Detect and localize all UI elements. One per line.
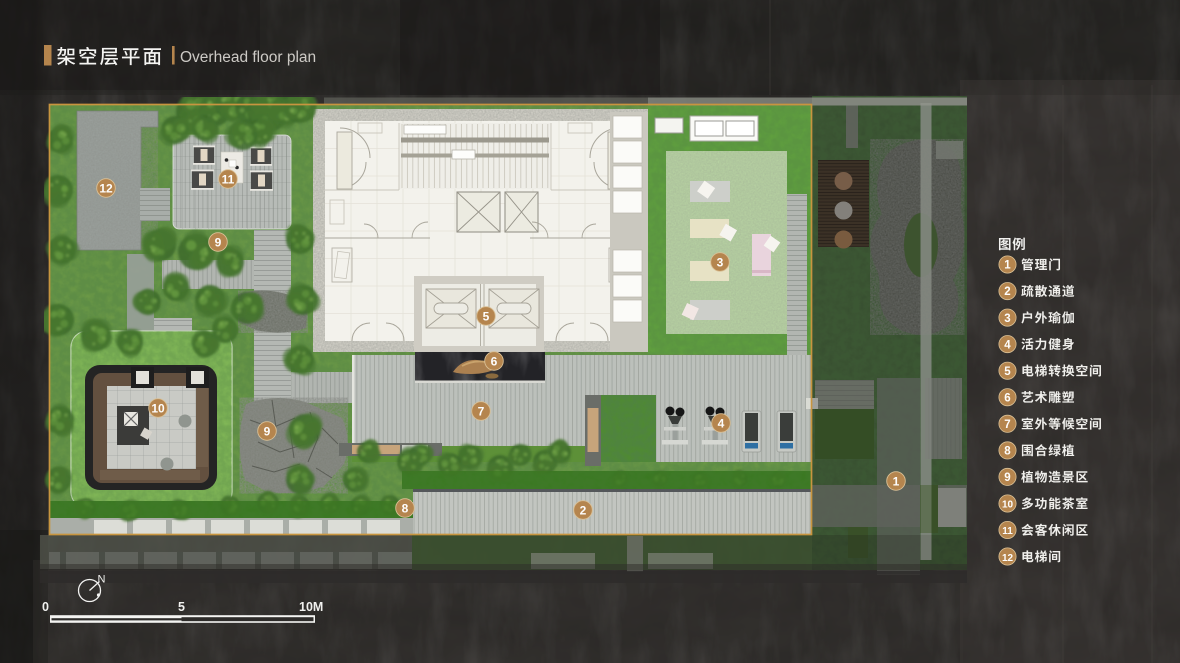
svg-text:N: N	[98, 574, 106, 586]
svg-text:4: 4	[1004, 339, 1011, 351]
svg-text:10: 10	[1002, 500, 1014, 511]
svg-text:5: 5	[483, 309, 490, 323]
svg-text:8: 8	[1004, 446, 1011, 458]
svg-text:12: 12	[1002, 553, 1014, 564]
svg-text:1: 1	[1004, 260, 1011, 272]
svg-text:Overhead floor plan: Overhead floor plan	[180, 49, 316, 66]
svg-text:5: 5	[178, 600, 185, 614]
svg-text:4: 4	[718, 416, 725, 430]
svg-text:3: 3	[1004, 313, 1010, 325]
svg-text:5: 5	[1004, 366, 1011, 378]
svg-text:11: 11	[1002, 526, 1013, 537]
svg-text:9: 9	[264, 424, 271, 438]
svg-text:9: 9	[1004, 472, 1010, 484]
svg-text:9: 9	[215, 235, 222, 249]
svg-text:3: 3	[717, 255, 724, 269]
svg-text:12: 12	[99, 181, 113, 195]
svg-text:2: 2	[1004, 286, 1010, 298]
svg-text:7: 7	[1004, 419, 1010, 431]
svg-text:6: 6	[491, 354, 498, 368]
svg-text:8: 8	[402, 501, 409, 515]
svg-text:1: 1	[893, 474, 900, 488]
svg-text:10: 10	[151, 401, 165, 415]
svg-text:10M: 10M	[299, 600, 323, 614]
svg-text:0: 0	[42, 600, 49, 614]
svg-text:11: 11	[222, 172, 235, 186]
svg-text:2: 2	[580, 503, 587, 517]
svg-text:6: 6	[1004, 392, 1010, 404]
svg-text:7: 7	[478, 404, 485, 418]
